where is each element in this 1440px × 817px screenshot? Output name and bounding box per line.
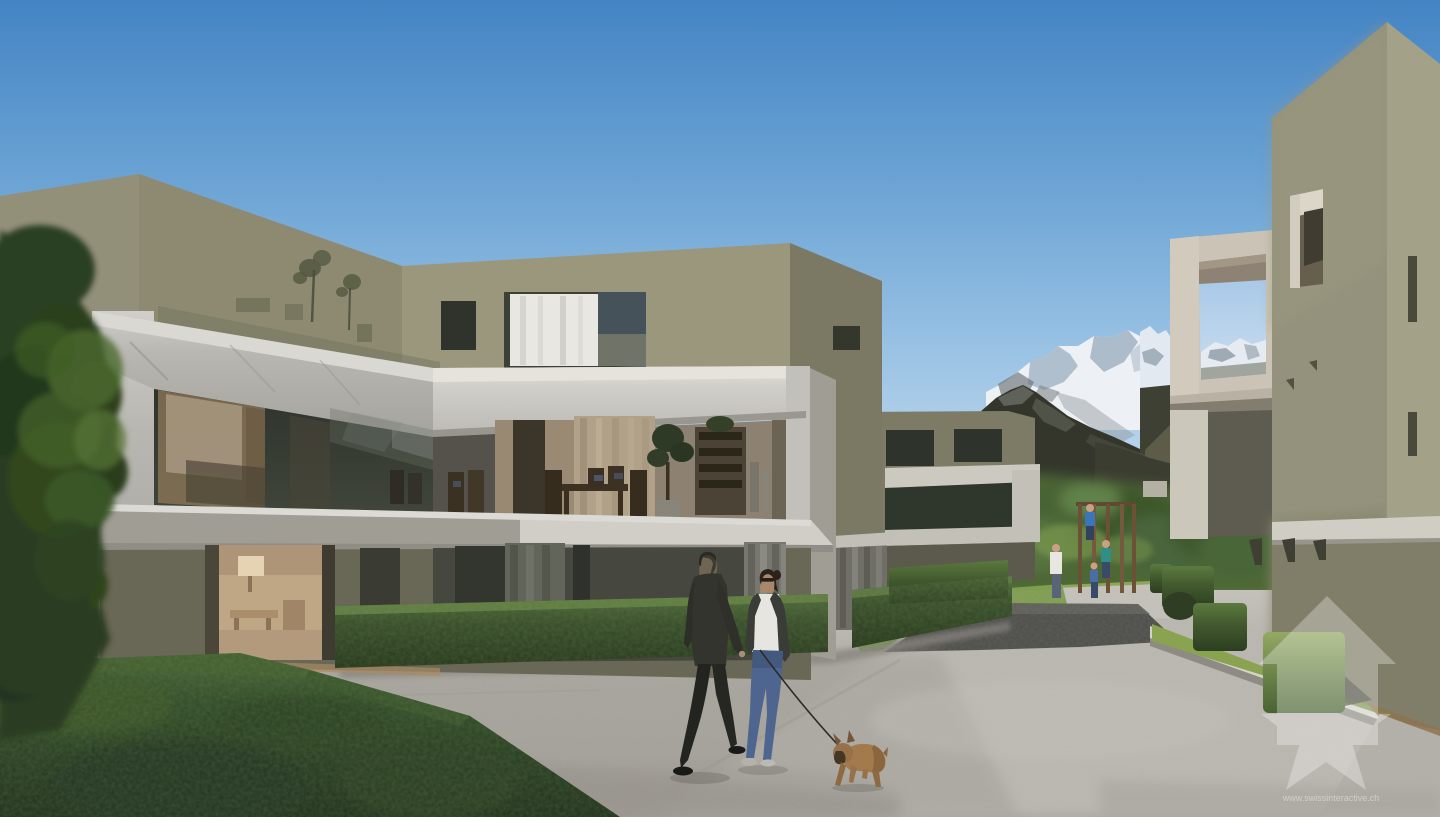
svg-text:www.swissinteractive.ch: www.swissinteractive.ch xyxy=(1282,793,1380,803)
